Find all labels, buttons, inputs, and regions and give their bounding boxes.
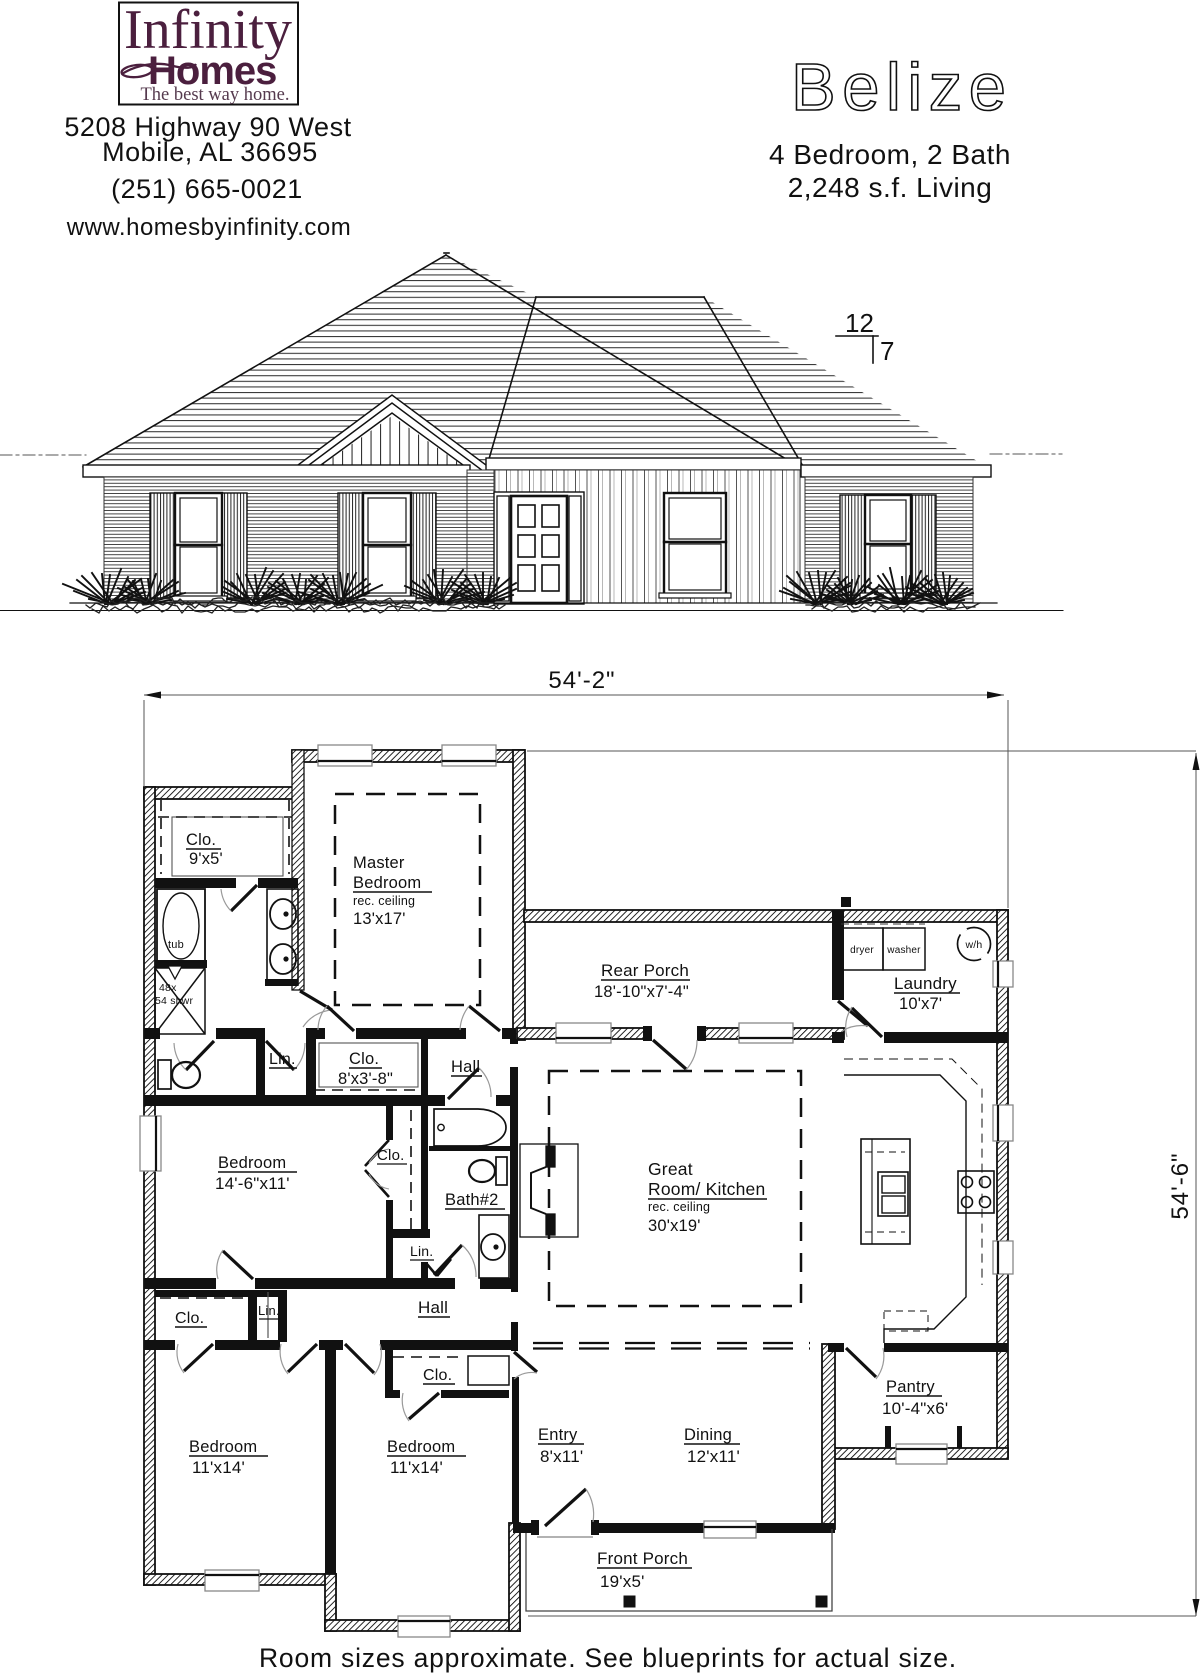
svg-text:12'x11': 12'x11' [687,1447,740,1466]
svg-text:18'-10"x7'-4": 18'-10"x7'-4" [594,983,689,1001]
svg-text:2,248 s.f. Living: 2,248 s.f. Living [788,172,993,203]
svg-text:8'x3'-8": 8'x3'-8" [338,1070,393,1088]
svg-text:dryer: dryer [850,945,874,956]
svg-text:11'x14': 11'x14' [390,1458,443,1477]
svg-text:9'x5': 9'x5' [189,850,223,868]
svg-text:8'x11': 8'x11' [540,1447,583,1466]
svg-text:rec. ceiling: rec. ceiling [648,1200,710,1214]
svg-text:4 Bedroom, 2 Bath: 4 Bedroom, 2 Bath [769,139,1011,170]
svg-text:48x: 48x [159,982,177,994]
svg-text:Hall: Hall [451,1058,480,1076]
svg-text:tub: tub [168,939,184,951]
svg-text:Great: Great [648,1159,693,1179]
svg-text:The best way home.: The best way home. [141,85,290,105]
svg-text:Lin.: Lin. [258,1303,280,1318]
svg-text:Bedroom: Bedroom [353,874,421,892]
svg-text:(251) 665-0021: (251) 665-0021 [111,174,303,204]
svg-text:Room sizes approximate. See b: Room sizes approximate. See blueprints f… [259,1643,957,1673]
svg-text:30'x19': 30'x19' [648,1217,701,1235]
svg-text:Pantry: Pantry [886,1378,935,1396]
svg-text:Bedroom: Bedroom [387,1438,455,1456]
svg-text:Clo.: Clo. [186,831,216,849]
svg-text:Bath#2: Bath#2 [445,1191,499,1209]
svg-text:Clo.: Clo. [423,1367,452,1384]
svg-text:Belize: Belize [791,50,1012,125]
svg-text:11'x14': 11'x14' [192,1458,245,1477]
svg-text:washer: washer [886,945,921,956]
svg-text:Master: Master [353,854,405,872]
svg-text:www.homesbyinfinity.com: www.homesbyinfinity.com [66,214,351,241]
svg-text:54'-2": 54'-2" [548,667,615,694]
svg-text:10'x7': 10'x7' [899,995,942,1013]
svg-text:14'-6"x11': 14'-6"x11' [215,1174,290,1193]
svg-text:rec. ceiling: rec. ceiling [353,894,415,908]
svg-text:Entry: Entry [538,1426,578,1444]
svg-text:Hall: Hall [418,1298,448,1317]
svg-text:Clo.: Clo. [377,1147,404,1164]
svg-text:Lin.: Lin. [410,1243,433,1259]
svg-text:Mobile, AL 36695: Mobile, AL 36695 [102,137,318,167]
svg-text:Lin.: Lin. [269,1051,296,1068]
svg-text:10'-4"x6': 10'-4"x6' [882,1399,948,1418]
svg-text:Front Porch: Front Porch [597,1549,688,1568]
svg-text:13'x17': 13'x17' [353,910,406,928]
svg-text:Bedroom: Bedroom [218,1154,286,1172]
svg-text:Rear Porch: Rear Porch [601,961,689,980]
svg-text:7: 7 [880,336,894,366]
svg-text:54 shwr: 54 shwr [155,995,193,1007]
svg-text:19'x5': 19'x5' [600,1572,645,1591]
svg-text:Laundry: Laundry [894,974,957,993]
svg-text:12: 12 [845,308,874,338]
svg-text:Clo.: Clo. [349,1050,379,1068]
svg-text:Dining: Dining [684,1426,732,1444]
svg-text:Bedroom: Bedroom [189,1438,257,1456]
svg-text:w/h: w/h [965,939,983,951]
svg-text:Room/ Kitchen: Room/ Kitchen [648,1179,765,1199]
svg-text:54'-6": 54'-6" [1167,1152,1194,1219]
svg-text:Clo.: Clo. [175,1310,204,1327]
